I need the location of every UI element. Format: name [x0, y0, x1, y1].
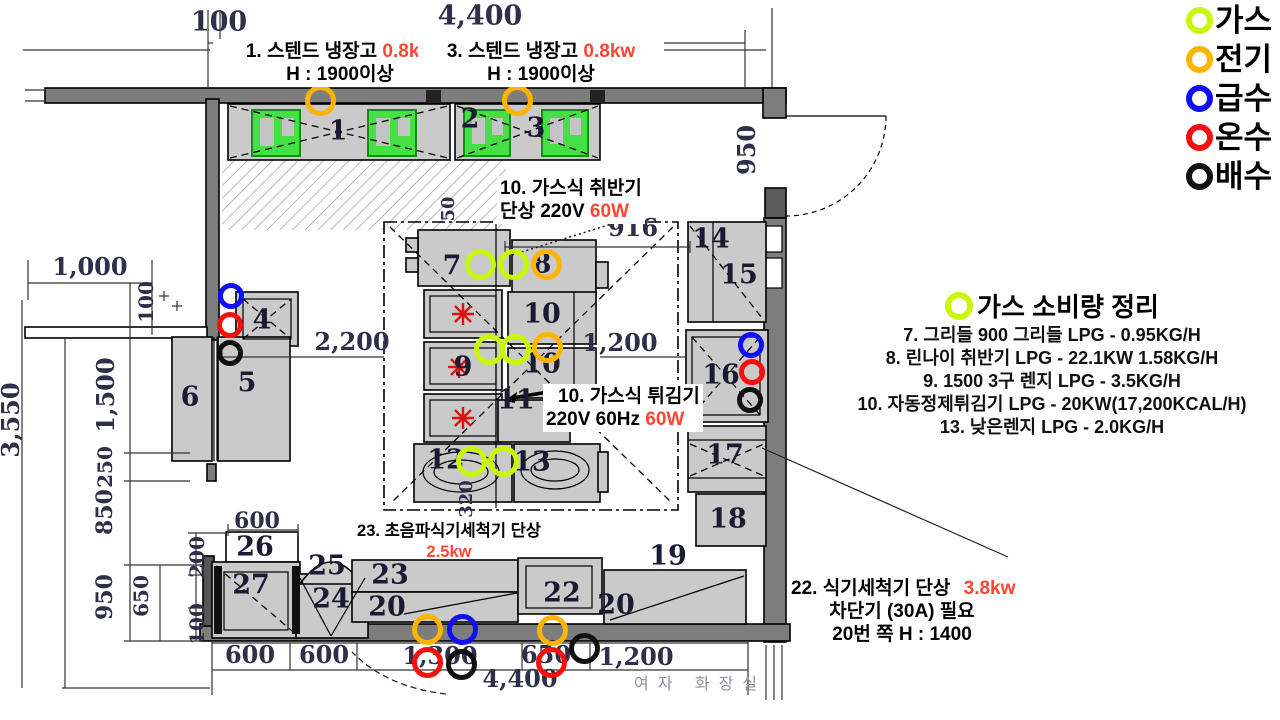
- legend-item-electric: 전기: [1186, 42, 1272, 76]
- annotation-text: 20번 쪽 H : 1400: [791, 623, 1013, 646]
- power-value: 60W: [645, 409, 684, 430]
- hot-legend-icon: [1186, 124, 1213, 151]
- annotation-text: 220V 60Hz: [546, 409, 640, 430]
- annotation-dishwasher: 22. 식기세척기 단상 3.8kw 차단기 (30A) 필요 20번 쪽 H …: [788, 576, 1016, 647]
- power-value: 2.5kw: [299, 542, 599, 563]
- electric-legend-icon: [1186, 46, 1213, 73]
- legend-label: 온수: [1215, 122, 1272, 153]
- annotation-text: 23. 초음파식기세척기 단상: [299, 521, 599, 542]
- drain-legend-icon: [1186, 163, 1213, 190]
- annotation-text: 단상 220V: [500, 201, 585, 222]
- annotation-text: 차단기 (30A) 필요: [791, 600, 1013, 623]
- legend-item-hot: 온수: [1186, 120, 1272, 154]
- power-value: 60W: [590, 201, 629, 222]
- annotation-text: 1. 스텐드 냉장고: [246, 41, 377, 62]
- annotation-text: 10. 가스식 취반기: [500, 177, 642, 200]
- legend-item-gas: 가스: [1186, 3, 1272, 37]
- water-legend-icon: [1186, 85, 1213, 112]
- legend-label: 급수: [1215, 83, 1272, 114]
- legend-item-water: 급수: [1186, 81, 1272, 115]
- kitchen-floorplan: 1004,4009501,0001001,5003,55025085095065…: [0, 0, 1280, 720]
- annotation-text: 10. 가스식 튀김기: [546, 385, 700, 408]
- gas-summary-line: 7. 그리들 900 그리들 LPG - 0.95KG/H: [850, 324, 1254, 347]
- annotation-ultrasonic-washer: 23. 초음파식기세척기 단상 2.5kw: [296, 520, 602, 564]
- gas-summary-line: 9. 1500 3구 렌지 LPG - 3.5KG/H: [850, 370, 1254, 393]
- legend-label: 가스: [1215, 5, 1272, 36]
- power-value: 0.8kw: [583, 41, 635, 62]
- gas-circle-icon: [945, 292, 973, 320]
- hatch-area: [222, 160, 506, 230]
- utility-legend: 가스전기급수온수배수: [1186, 3, 1272, 193]
- power-value: 3.8kw: [964, 578, 1016, 599]
- gas-summary-lines: 7. 그리들 900 그리들 LPG - 0.95KG/H8. 린나이 취반기 …: [850, 324, 1254, 439]
- gas-legend-icon: [1186, 7, 1213, 34]
- gas-summary-block: 가스 소비량 정리 7. 그리들 900 그리들 LPG - 0.95KG/H8…: [850, 287, 1254, 439]
- gas-summary-line: 13. 낮은렌지 LPG - 2.0KG/H: [850, 416, 1254, 439]
- gas-summary-title-text: 가스 소비량 정리: [977, 287, 1159, 324]
- legend-item-drain: 배수: [1186, 159, 1272, 193]
- room-label: 여자 화장실: [634, 670, 766, 694]
- annotation-text: 22. 식기세척기 단상: [791, 578, 950, 599]
- legend-label: 배수: [1215, 161, 1272, 192]
- annotation-rice-cooker: 10. 가스식 취반기 단상 220V 60W: [497, 176, 645, 224]
- gas-summary-line: 10. 자동정제튀김기 LPG - 20KW(17,200KCAL/H): [850, 393, 1254, 416]
- annotation-fridge-3: 3. 스텐드 냉장고 0.8kw H : 1900이상: [418, 39, 664, 87]
- annotation-text: 3. 스텐드 냉장고: [447, 41, 578, 62]
- door-swing: [786, 116, 886, 216]
- annotation-fryer: 10. 가스식 튀김기 220V 60Hz 60W: [543, 384, 703, 432]
- legend-label: 전기: [1215, 44, 1272, 75]
- height-note: H : 1900이상: [421, 63, 661, 86]
- gas-summary-title: 가스 소비량 정리: [850, 287, 1254, 324]
- gas-summary-line: 8. 린나이 취반기 LPG - 22.1KW 1.58KG/H: [850, 347, 1254, 370]
